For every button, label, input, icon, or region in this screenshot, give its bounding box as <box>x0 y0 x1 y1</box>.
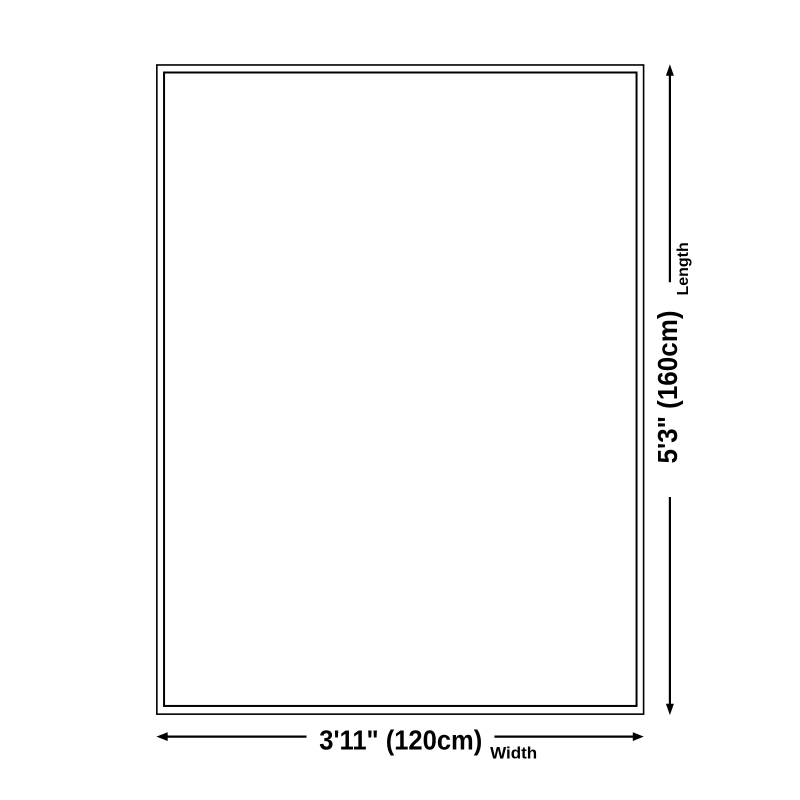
svg-text:Length: Length <box>675 242 692 295</box>
svg-text:3'11" (120cm): 3'11" (120cm) <box>319 724 482 755</box>
svg-text:Width: Width <box>490 744 537 763</box>
svg-text:5'3" (160cm): 5'3" (160cm) <box>652 311 683 464</box>
